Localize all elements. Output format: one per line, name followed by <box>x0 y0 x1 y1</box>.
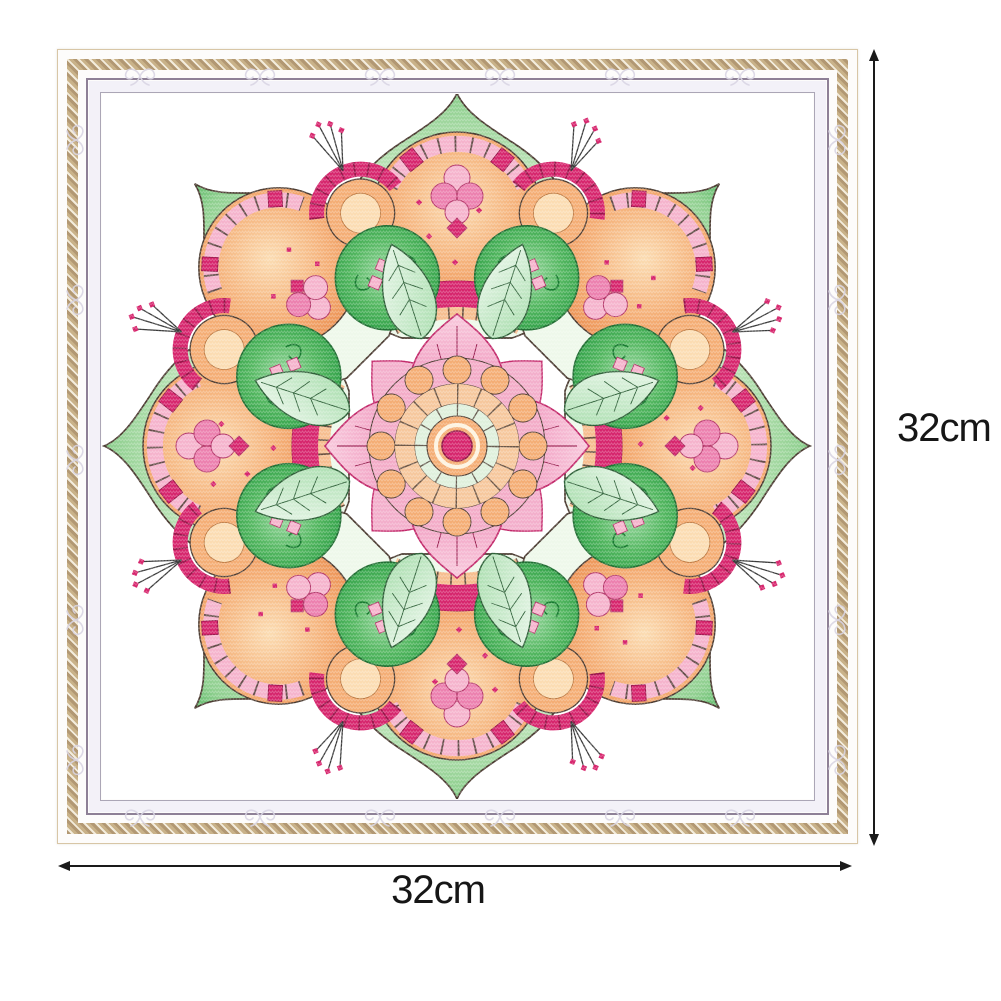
damask-flourish <box>242 806 278 828</box>
damask-flourish <box>827 742 849 778</box>
damask-flourish <box>722 806 758 828</box>
arrow-left-icon <box>58 861 70 871</box>
arrow-right-icon <box>840 861 852 871</box>
damask-flourish <box>65 742 87 778</box>
damask-flourish <box>65 602 87 638</box>
damask-flourish <box>722 65 758 87</box>
damask-flourish <box>122 65 158 87</box>
aida-fabric <box>102 94 813 799</box>
damask-flourish <box>827 122 849 158</box>
damask-flourish <box>65 442 87 478</box>
product-photo: 32cm 32cm <box>0 0 1001 1001</box>
horizontal-dimension-line <box>70 865 840 867</box>
damask-flourish <box>602 65 638 87</box>
cross-stitch-texture <box>102 94 813 799</box>
damask-flourish <box>242 65 278 87</box>
damask-flourish <box>362 806 398 828</box>
damask-flourish <box>65 282 87 318</box>
damask-flourish <box>482 806 518 828</box>
damask-flourish <box>827 282 849 318</box>
mandala-cross-stitch-artwork <box>102 94 813 799</box>
damask-flourish <box>362 65 398 87</box>
width-dimension-label: 32cm <box>338 868 538 913</box>
arrow-down-icon <box>869 834 879 846</box>
vertical-dimension-line <box>873 60 875 835</box>
damask-flourish <box>827 602 849 638</box>
height-dimension-label: 32cm <box>897 406 991 451</box>
damask-flourish <box>122 806 158 828</box>
damask-flourish <box>482 65 518 87</box>
damask-flourish <box>827 442 849 478</box>
damask-flourish <box>602 806 638 828</box>
picture-frame <box>57 49 858 844</box>
damask-flourish <box>65 122 87 158</box>
